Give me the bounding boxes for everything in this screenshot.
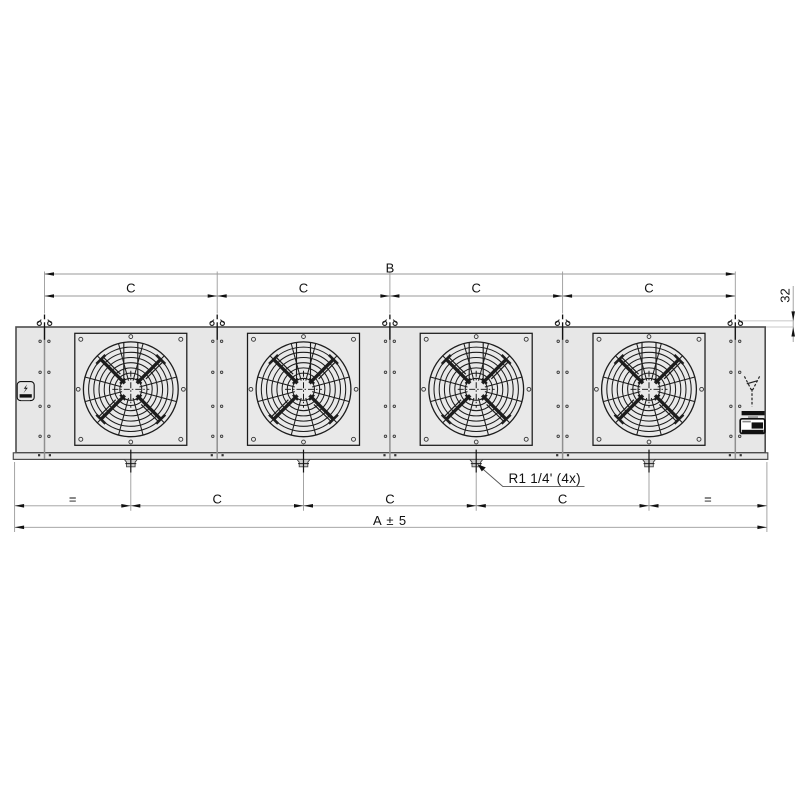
- svg-text:C: C: [213, 491, 222, 506]
- svg-text:C: C: [644, 280, 653, 295]
- svg-text:C: C: [385, 491, 394, 506]
- svg-text:C: C: [558, 491, 567, 506]
- svg-text:C: C: [126, 280, 135, 295]
- svg-text:A ± 5: A ± 5: [373, 513, 407, 528]
- svg-text:32: 32: [778, 288, 793, 302]
- svg-text:B: B: [386, 261, 395, 276]
- svg-text:R1 1/4' (4x): R1 1/4' (4x): [509, 471, 581, 486]
- svg-text:=: =: [704, 491, 712, 506]
- svg-text:C: C: [472, 280, 481, 295]
- svg-text:=: =: [69, 491, 77, 506]
- svg-text:C: C: [299, 280, 308, 295]
